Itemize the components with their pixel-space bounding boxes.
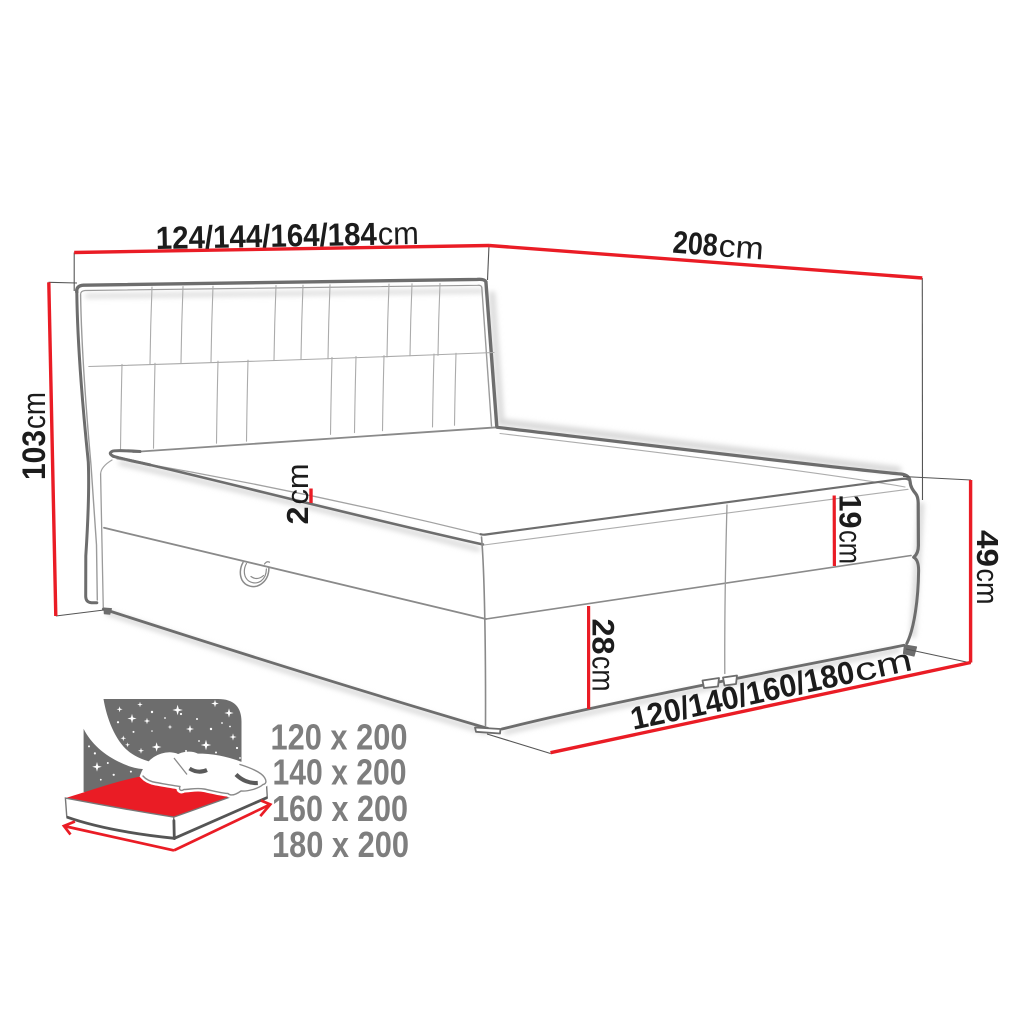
svg-text:cm: cm bbox=[717, 227, 765, 266]
svg-text:180 x 200: 180 x 200 bbox=[272, 824, 409, 865]
svg-text:cm: cm bbox=[970, 569, 1005, 605]
svg-text:cm: cm bbox=[280, 464, 315, 505]
svg-text:103: 103 bbox=[16, 430, 52, 480]
svg-text:160 x 200: 160 x 200 bbox=[272, 788, 408, 829]
svg-text:cm: cm bbox=[16, 392, 52, 429]
svg-text:19: 19 bbox=[833, 495, 869, 529]
svg-text:2: 2 bbox=[280, 507, 315, 525]
svg-text:140 x 200: 140 x 200 bbox=[273, 752, 407, 793]
svg-text:cm: cm bbox=[833, 530, 869, 564]
svg-text:124/144/164/184: 124/144/164/184 bbox=[155, 216, 377, 256]
svg-text:cm: cm bbox=[586, 656, 622, 692]
svg-text:28: 28 bbox=[586, 619, 622, 655]
svg-text:cm: cm bbox=[377, 215, 419, 252]
svg-text:208: 208 bbox=[672, 224, 720, 263]
svg-text:49: 49 bbox=[970, 530, 1005, 567]
